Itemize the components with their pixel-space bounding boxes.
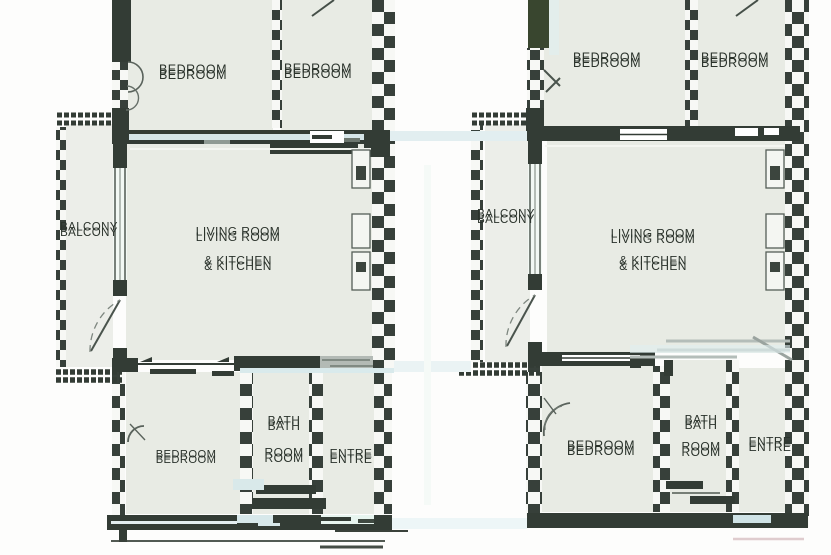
svg-text:LIVING ROOM: LIVING ROOM [611, 232, 695, 246]
svg-text:BATH: BATH [685, 418, 718, 432]
svg-text:BALCONY: BALCONY [60, 227, 118, 239]
svg-text:ENTRE: ENTRE [749, 440, 792, 454]
svg-text:BEDROOM: BEDROOM [156, 454, 217, 466]
svg-text:BEDROOM: BEDROOM [567, 444, 635, 458]
svg-text:BEDROOM: BEDROOM [701, 56, 769, 70]
svg-text:BEDROOM: BEDROOM [284, 67, 352, 81]
svg-text:& KITCHEN: & KITCHEN [204, 259, 272, 273]
svg-text:ENTRE: ENTRE [330, 452, 373, 466]
svg-text:ROOM: ROOM [682, 445, 721, 459]
svg-text:LIVING ROOM: LIVING ROOM [196, 230, 280, 244]
svg-text:ROOM: ROOM [265, 451, 304, 465]
svg-text:BALCONY: BALCONY [477, 214, 535, 226]
svg-text:BEDROOM: BEDROOM [159, 68, 227, 82]
svg-text:& KITCHEN: & KITCHEN [619, 259, 687, 273]
svg-text:BATH: BATH [268, 419, 301, 433]
svg-text:BEDROOM: BEDROOM [573, 56, 641, 70]
